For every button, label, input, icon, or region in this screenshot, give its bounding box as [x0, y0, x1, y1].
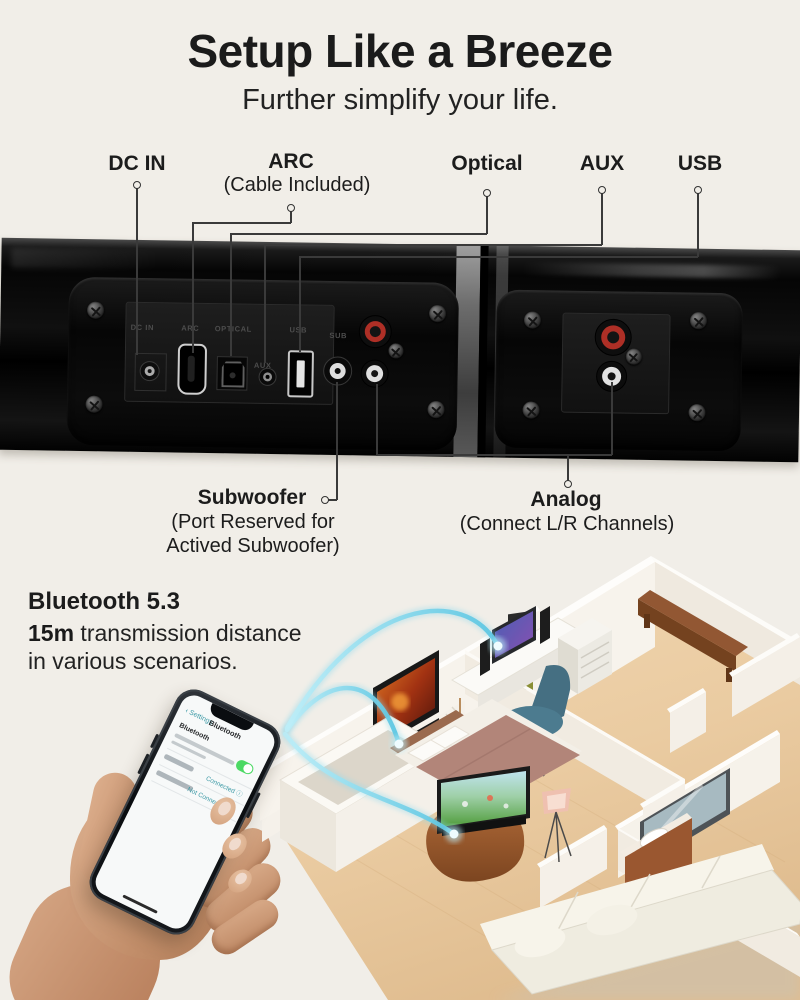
rca-white-jack-hole [371, 370, 378, 377]
callout-line [376, 384, 378, 455]
callout-line [193, 222, 291, 224]
callout-line [300, 256, 698, 258]
callout-line [601, 193, 603, 245]
screw-icon [427, 401, 444, 418]
port-label-arc: ARC [181, 324, 199, 333]
info-icon: ⓘ [234, 790, 243, 799]
callout-label-aux: AUX [580, 152, 624, 176]
port-label-dc-in: DC IN [131, 323, 155, 332]
callout-dot-arc [287, 204, 295, 212]
speaker [480, 638, 490, 676]
room-illustration [240, 552, 800, 1000]
analog-plate [561, 313, 671, 415]
callout-note-arc: (Cable Included) [224, 174, 371, 197]
screw-icon [85, 396, 102, 413]
screw-icon [626, 349, 642, 365]
page-subtitle: Further simplify your life. [0, 84, 800, 117]
callout-line [264, 244, 266, 363]
callout-line [299, 256, 301, 352]
bluetooth-distance: 15m [28, 620, 74, 646]
callout-label-optical: Optical [451, 152, 522, 176]
callout-dot-aux [598, 186, 606, 194]
right-port-panel [494, 290, 742, 452]
callout-label-dc-in: DC IN [108, 152, 165, 176]
callout-dot-optical [483, 189, 491, 197]
usb-tongue [296, 360, 304, 387]
bluetooth-toggle [234, 758, 255, 776]
aux-jack-hole [266, 375, 270, 379]
screw-icon [524, 311, 541, 328]
callout-note-subwoofer-1: (Port Reserved for [171, 511, 334, 534]
optical-port [216, 356, 248, 390]
rca-white-jack-hole [608, 372, 616, 380]
port-label-optical: OPTICAL [215, 324, 252, 334]
optical-port-lens [230, 372, 236, 378]
port-label-sub: SUB [329, 331, 347, 340]
callout-line [192, 222, 194, 353]
screw-icon [690, 312, 707, 329]
callout-label-arc: ARC [268, 150, 314, 174]
callout-line [697, 193, 699, 257]
callout-line [136, 188, 138, 355]
callout-note-analog: (Connect L/R Channels) [460, 513, 675, 536]
bluetooth-heading: Bluetooth 5.3 [28, 588, 180, 616]
product-infographic: Setup Like a Breeze Further simplify you… [0, 0, 800, 1000]
soundbar-gloss-highlight [11, 248, 161, 270]
screw-icon [87, 302, 104, 319]
callout-line [611, 382, 613, 455]
sub-jack-hole [335, 368, 341, 374]
callout-label-usb: USB [678, 152, 722, 176]
bluetooth-line2: in various scenarios. [28, 648, 238, 675]
callout-line [567, 454, 569, 481]
callout-dot-usb [694, 186, 702, 194]
dc-in-jack-pin [148, 369, 152, 373]
page-title: Setup Like a Breeze [0, 24, 800, 78]
usb-port [287, 350, 314, 397]
screw-icon [522, 401, 539, 418]
callout-line [265, 244, 602, 246]
callout-dot-subwoofer [321, 496, 329, 504]
screw-icon [429, 305, 446, 322]
callout-line [486, 196, 488, 234]
volume-button [150, 734, 159, 749]
hdmi-slot [187, 356, 194, 382]
left-port-panel: DC IN ARC OPTICAL USB AUX [66, 277, 459, 451]
soundbar-rear-view: DC IN ARC OPTICAL USB AUX [0, 238, 800, 463]
callout-line [231, 233, 487, 235]
home-indicator [122, 894, 157, 913]
callout-line [230, 233, 232, 356]
callout-line [336, 382, 338, 500]
callout-label-analog: Analog [530, 488, 601, 512]
screw-icon [388, 343, 403, 358]
callout-dot-dc-in [133, 181, 141, 189]
callout-line [376, 454, 612, 456]
callout-label-subwoofer: Subwoofer [198, 486, 307, 510]
screw-icon [688, 404, 705, 421]
speaker [540, 606, 550, 644]
callout-dot-analog [564, 480, 572, 488]
